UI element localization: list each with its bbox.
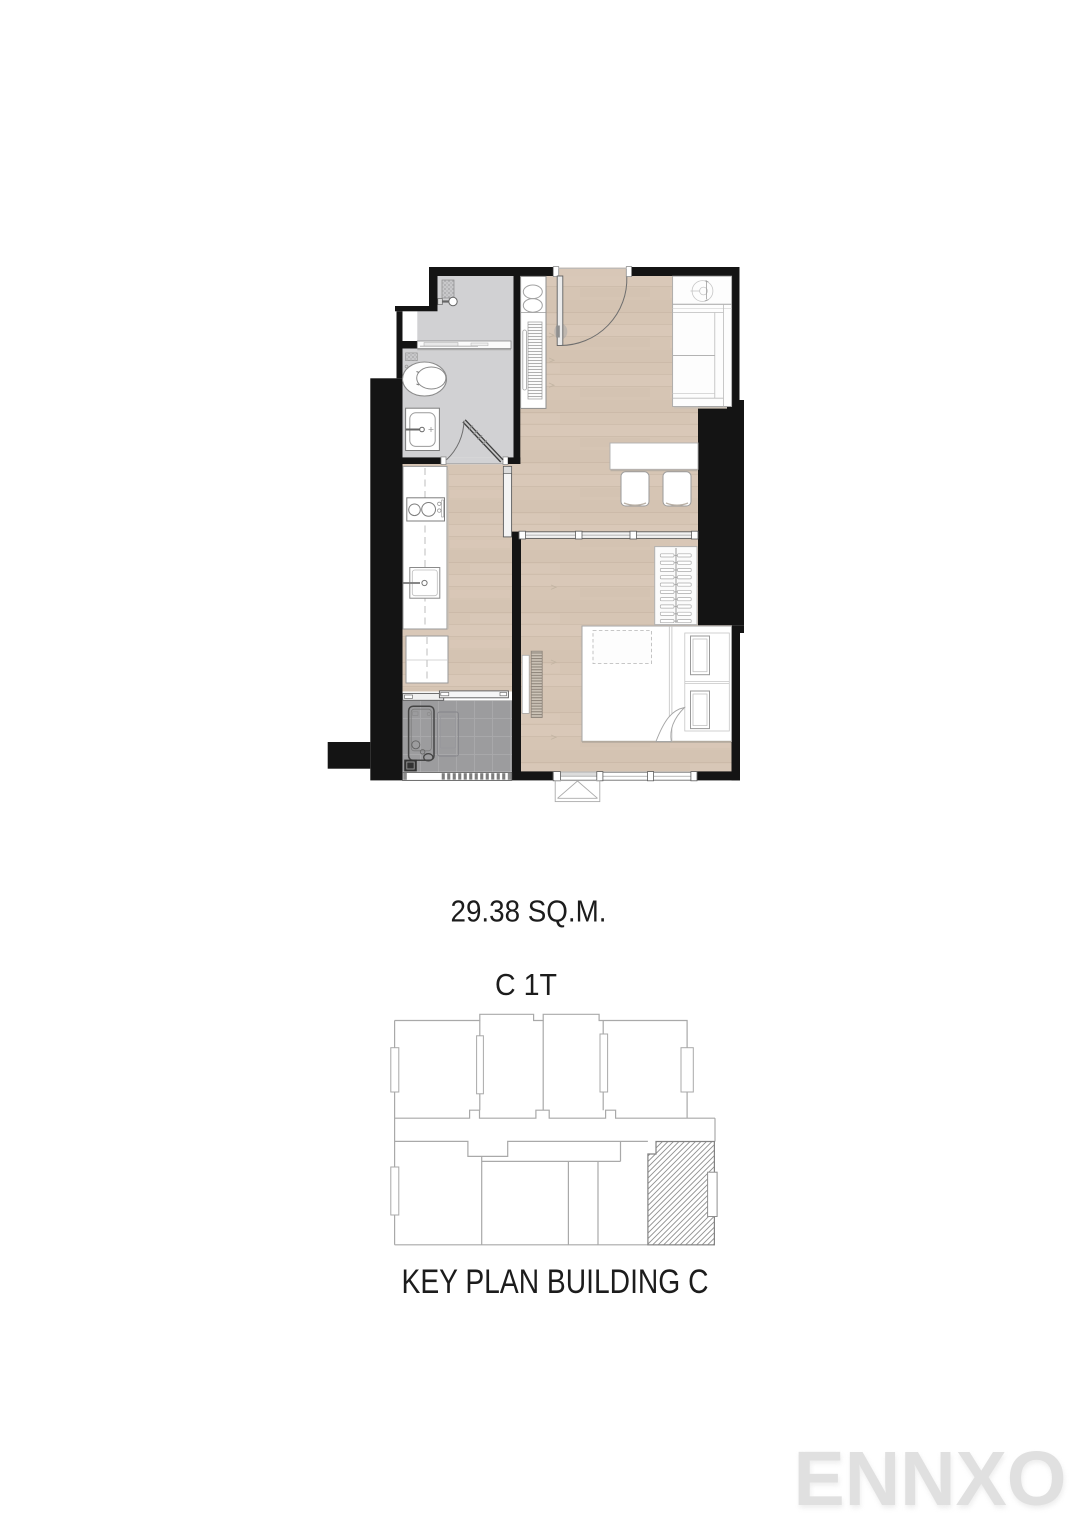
- svg-text:29.38 SQ.M.: 29.38 SQ.M.: [451, 894, 607, 929]
- svg-text:ENNXO: ENNXO: [794, 1436, 1067, 1522]
- svg-text:KEY PLAN BUILDING C: KEY PLAN BUILDING C: [402, 1263, 709, 1301]
- svg-text:C 1T: C 1T: [495, 967, 557, 1002]
